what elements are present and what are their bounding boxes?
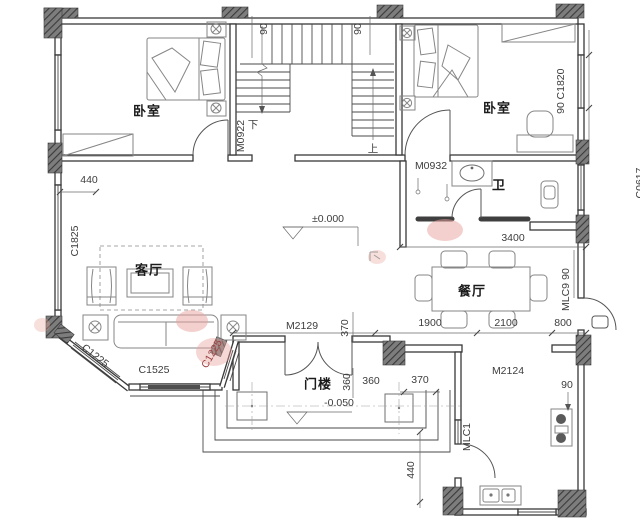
door-label-m2124: M2124 — [492, 365, 524, 377]
dim-440-bottom: 440 — [405, 461, 417, 479]
level-marker-main — [283, 227, 358, 246]
bath-toilet — [541, 181, 558, 208]
stair-landing-treads — [272, 24, 352, 64]
porch — [130, 382, 460, 452]
window-label-c0617: C0617 — [634, 167, 640, 198]
kitchen-stove — [551, 409, 572, 446]
room-label-living: 客厅 — [135, 263, 163, 278]
stair-up-text: 上 — [368, 143, 379, 155]
floor-plan-page: 卧室 卧室 卫 客厅 餐厅 门楼 ±0.000 -0.050 上 下 90 90… — [0, 0, 640, 529]
dim-90-dining: 90 — [560, 268, 572, 280]
dim-370-center: 370 — [339, 319, 351, 337]
window-living-c1825 — [55, 185, 61, 310]
armchair-right — [183, 267, 212, 305]
labels: 卧室 卧室 卫 客厅 餐厅 门楼 ±0.000 -0.050 上 下 90 90… — [69, 23, 640, 479]
desk-bedroom-right — [517, 111, 573, 152]
dim-360-b: 360 — [362, 375, 380, 387]
door-bathroom-m0932 — [418, 189, 528, 219]
dim-3400: 3400 — [501, 232, 525, 244]
window-label-c1525: C1525 — [139, 364, 170, 376]
desk-bedroom-left — [63, 134, 133, 156]
armchair-left — [87, 267, 116, 305]
stair-dim-right: 90 — [352, 23, 364, 35]
window-bedroom-left — [55, 55, 61, 130]
dim-800: 800 — [554, 317, 572, 329]
window-bay-c1525 — [140, 384, 210, 390]
window-label-c1820: C1820 — [555, 68, 567, 99]
wardrobe-bedroom-right — [502, 24, 575, 42]
room-label-dining: 餐厅 — [457, 284, 486, 299]
door-label-m0922: M0922 — [235, 120, 247, 152]
door-bedroom-right — [405, 110, 450, 155]
dim-2100: 2100 — [494, 317, 518, 329]
kitchen-sink — [480, 486, 521, 505]
window-label-c1825: C1825 — [69, 225, 81, 256]
bath-sink — [452, 161, 492, 186]
window-bedroom-right-c1820 — [578, 55, 584, 108]
door-side-mlc9 — [584, 298, 616, 330]
side-table-left — [83, 315, 108, 340]
window-kitchen-bottom — [518, 509, 556, 515]
dim-440-top: 440 — [80, 174, 98, 186]
door-label-mlc1: MLC1 — [461, 423, 473, 451]
dim-90-bedroom: 90 — [555, 102, 567, 114]
dim-1900: 1900 — [418, 317, 442, 329]
door-label-m2129: M2129 — [286, 320, 318, 332]
window-bath-c0617 — [578, 165, 584, 210]
level-marker-porch — [287, 412, 352, 424]
stair-down-arrow — [257, 26, 267, 114]
level-main-text: ±0.000 — [312, 213, 344, 225]
stair-left-flight — [236, 64, 290, 112]
dim-370-bottom: 370 — [411, 374, 429, 386]
door-label-mlc9: MLC9 — [560, 283, 572, 311]
room-label-bedroom-left: 卧室 — [133, 104, 161, 119]
room-label-bedroom-right: 卧室 — [483, 101, 511, 116]
stair-down-text: 下 — [248, 119, 259, 131]
dim-90-kitchen: 90 — [561, 379, 573, 391]
level-porch-text: -0.050 — [324, 397, 354, 409]
bed-left — [147, 22, 226, 116]
floor-plan-canvas: 卧室 卧室 卫 客厅 餐厅 门楼 ±0.000 -0.050 上 下 90 90… — [0, 0, 640, 529]
dim-360-a: 360 — [341, 373, 353, 391]
door-label-m0932: M0932 — [415, 160, 447, 172]
bed-right — [400, 25, 478, 110]
room-label-bathroom: 卫 — [492, 178, 506, 193]
stair-dim-left: 90 — [258, 23, 270, 35]
entry-double-door-m2129 — [285, 342, 352, 375]
door-bedroom-left-m0922 — [193, 120, 228, 155]
room-label-gatehouse: 门楼 — [304, 377, 332, 392]
windows — [55, 55, 584, 515]
